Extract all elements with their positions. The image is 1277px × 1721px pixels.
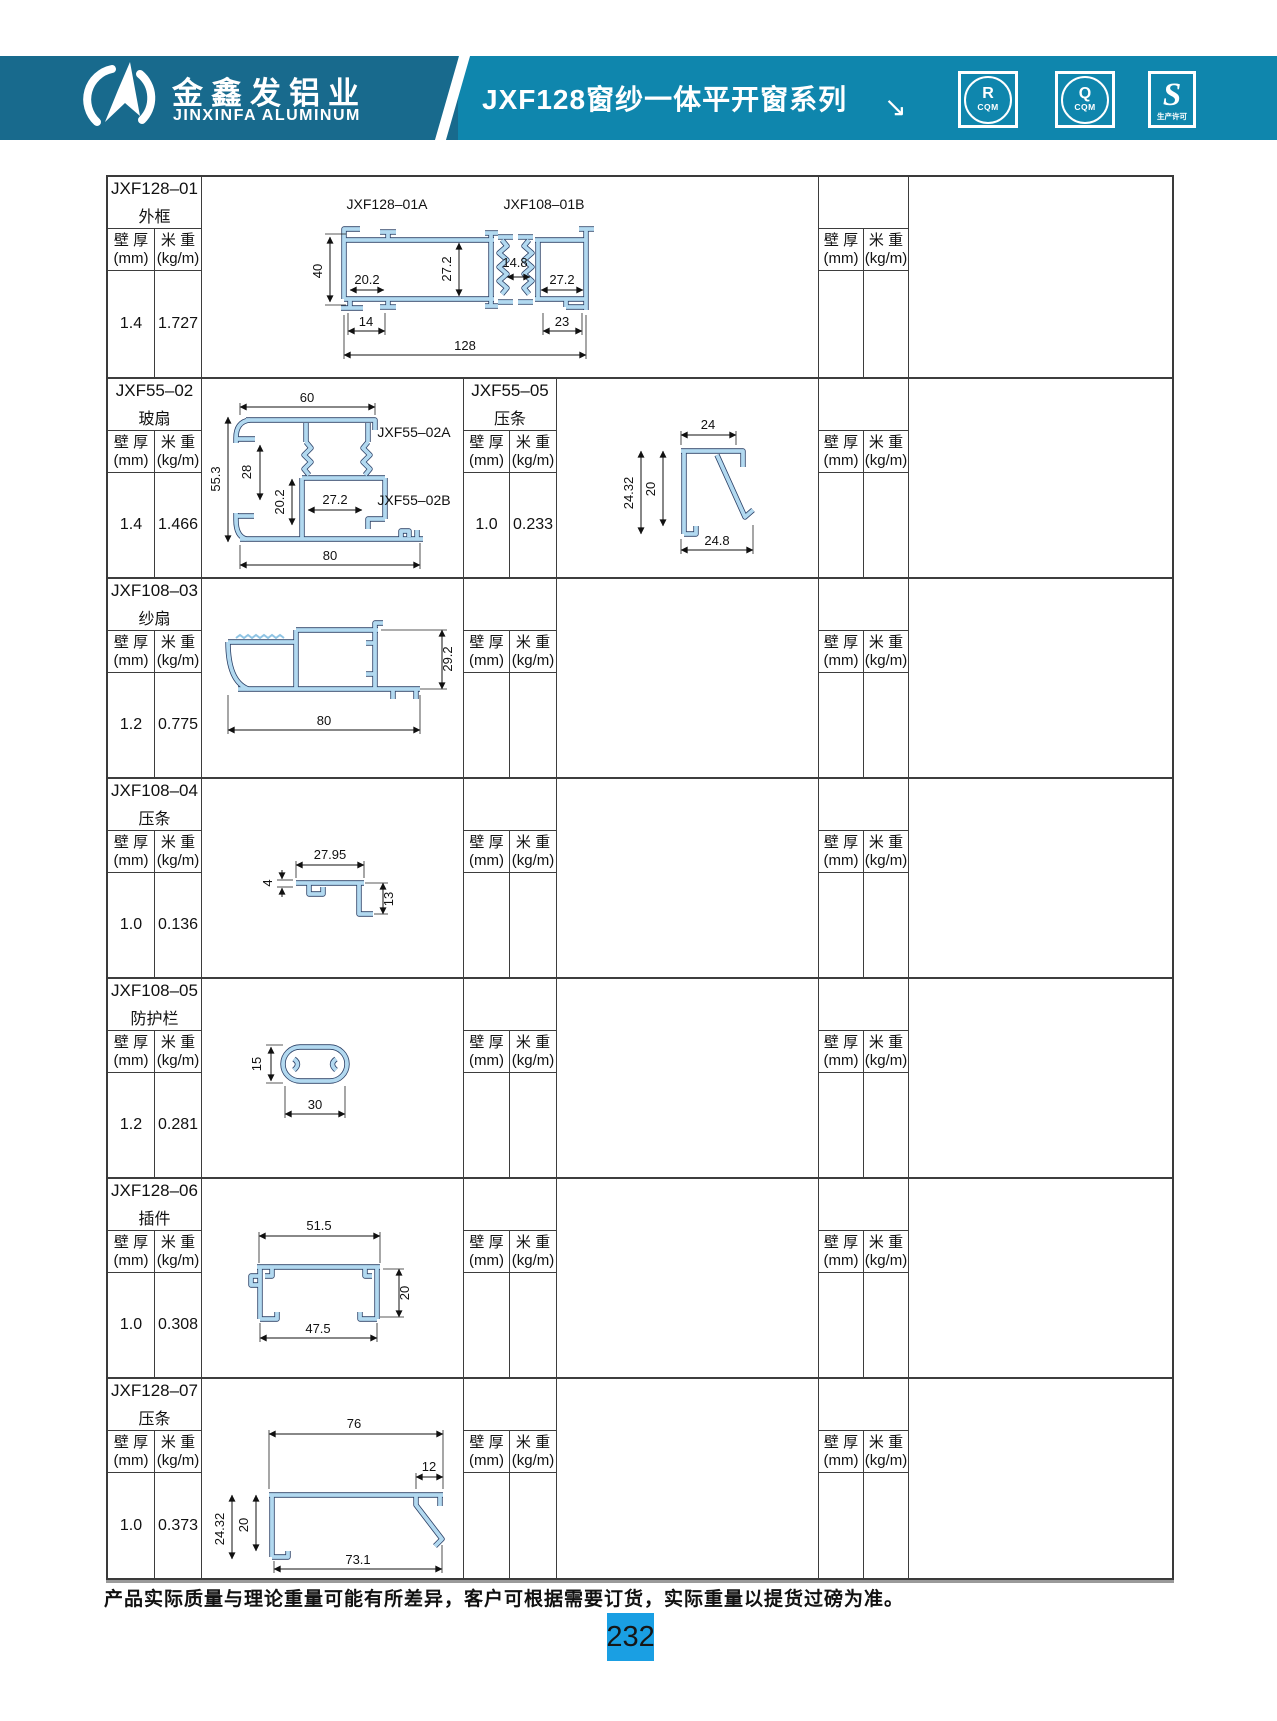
value: 1.0 xyxy=(120,916,142,934)
profile-name: 玻扇 xyxy=(138,405,170,429)
hdr-line2: (kg/m) xyxy=(865,1252,908,1270)
hdr-line1: 壁 厚 xyxy=(469,434,503,452)
profile-drawing-cell: 27.95 4 13 xyxy=(202,779,464,977)
company-logo-icon xyxy=(76,60,160,138)
meter-weight-header: 米 重(kg/m) xyxy=(155,1431,202,1473)
profile-code: JXF128–06 xyxy=(111,1181,198,1201)
value: 1.0 xyxy=(120,1316,142,1334)
profile-drawing-jxf108-05: 15 30 xyxy=(202,979,464,1177)
empty-value-cell xyxy=(864,473,909,577)
hdr-line2: (mm) xyxy=(469,1252,504,1270)
hdr-line1: 壁 厚 xyxy=(824,1234,858,1252)
empty-drawing-cell xyxy=(557,979,819,1177)
hdr-line2: (kg/m) xyxy=(157,852,200,870)
empty-value-cell xyxy=(819,673,864,777)
badge-sub: CQM xyxy=(977,103,998,112)
profile-code-cell: JXF128–07 压条 xyxy=(108,1379,202,1431)
wall-thickness-header: 壁 厚(mm) xyxy=(108,1431,155,1473)
wall-thickness-header: 壁 厚(mm) xyxy=(108,229,155,271)
empty-value-cell xyxy=(464,1073,510,1177)
empty-drawing-cell xyxy=(557,579,819,777)
meter-weight-header: 米 重(kg/m) xyxy=(864,631,909,673)
wall-thickness-header: 壁 厚(mm) xyxy=(108,831,155,873)
sub-profile-label-a: JXF128–01A xyxy=(347,196,429,212)
profile-drawing-cell: 40 20.2 27.2 14.8 27.2 14 xyxy=(202,177,819,377)
hdr-line2: (kg/m) xyxy=(157,652,200,670)
hdr-line2: (kg/m) xyxy=(512,1252,555,1270)
meter-weight-value: 0.233 xyxy=(510,473,557,577)
meter-weight-header: 米 重(kg/m) xyxy=(510,831,557,873)
badge-letter: R xyxy=(982,86,994,103)
empty-value-cell xyxy=(464,1273,510,1377)
wall-thickness-header: 壁 厚(mm) xyxy=(819,431,864,473)
hdr-line2: (mm) xyxy=(114,452,149,470)
qs-mark-icon: S 生产许可 xyxy=(1157,78,1187,121)
profile-drawing-jxf55-05: 24 24.32 20 24.8 xyxy=(557,379,819,577)
profile-code: JXF55–05 xyxy=(471,381,549,401)
hdr-line2: (kg/m) xyxy=(512,852,555,870)
wall-thickness-value: 1.0 xyxy=(108,1473,155,1578)
hdr-line1: 壁 厚 xyxy=(824,634,858,652)
spare-top-cell xyxy=(464,979,557,1031)
spare-top-cell xyxy=(464,579,557,631)
hdr-line2: (mm) xyxy=(114,652,149,670)
hdr-line2: (kg/m) xyxy=(865,1052,908,1070)
value: 1.2 xyxy=(120,1116,142,1134)
dim-73-1: 73.1 xyxy=(345,1552,370,1567)
hdr-line2: (mm) xyxy=(824,1252,859,1270)
profile-name: 压条 xyxy=(138,805,170,829)
hdr-line2: (mm) xyxy=(469,452,504,470)
empty-value-cell xyxy=(510,1273,557,1377)
dim-15: 15 xyxy=(249,1057,264,1071)
hdr-line2: (mm) xyxy=(114,1452,149,1470)
spare-top-cell xyxy=(819,177,909,229)
profile-drawing-cell: 51.5 20 47.5 xyxy=(202,1179,464,1377)
company-name-en: JINXINFA ALUMINUM xyxy=(173,107,361,125)
profile-drawing-cell: 15 30 xyxy=(202,979,464,1177)
hdr-line2: (mm) xyxy=(824,250,859,268)
hdr-line1: 壁 厚 xyxy=(114,1034,148,1052)
meter-weight-header: 米 重(kg/m) xyxy=(510,1031,557,1073)
meter-weight-header: 米 重(kg/m) xyxy=(155,631,202,673)
spare-top-cell xyxy=(819,1379,909,1431)
empty-value-cell xyxy=(819,1273,864,1377)
profile-table: JXF128–01 外框 壁 厚(mm) 米 重(kg/m) 1.4 1.727 xyxy=(106,175,1174,1580)
table-row: JXF128–06 插件 壁 厚(mm) 米 重(kg/m) 1.0 0.308 xyxy=(108,1179,1172,1379)
dim-24-32: 24.32 xyxy=(212,1513,227,1546)
empty-drawing-cell xyxy=(909,379,1172,577)
empty-value-cell xyxy=(819,1073,864,1177)
hdr-line1: 壁 厚 xyxy=(469,1234,503,1252)
dim-20: 20 xyxy=(236,1518,251,1532)
profile-code: JXF108–03 xyxy=(111,581,198,601)
dim-20: 20 xyxy=(397,1286,412,1300)
dim-20-2: 20.2 xyxy=(354,272,379,287)
spare-top-cell xyxy=(464,779,557,831)
sub-profile-label-a: JXF55–02A xyxy=(377,424,451,440)
dimensions: 40 20.2 27.2 14.8 27.2 14 xyxy=(310,196,586,359)
profile-code: JXF108–05 xyxy=(111,981,198,1001)
empty-value-cell xyxy=(864,673,909,777)
hdr-line2: (kg/m) xyxy=(512,652,555,670)
cert-circle-icon: R CQM xyxy=(964,76,1012,124)
hdr-line1: 壁 厚 xyxy=(114,1234,148,1252)
wall-thickness-header: 壁 厚(mm) xyxy=(464,1431,510,1473)
meter-weight-value: 0.373 xyxy=(155,1473,202,1578)
empty-drawing-cell xyxy=(557,1379,819,1578)
dim-55-3: 55.3 xyxy=(208,466,223,491)
profile-drawing-jxf55-02: 60 55.3 28 20.2 27.2 80 JXF55–02A JXF5 xyxy=(202,379,464,577)
dim-76: 76 xyxy=(347,1416,361,1431)
wall-thickness-value: 1.4 xyxy=(108,473,155,577)
spare-top-cell xyxy=(819,779,909,831)
cert-badge-r-cqm: R CQM xyxy=(958,71,1018,128)
hdr-line2: (mm) xyxy=(114,250,149,268)
hdr-line1: 米 重 xyxy=(516,1434,550,1452)
hdr-line1: 壁 厚 xyxy=(824,1034,858,1052)
empty-value-cell xyxy=(510,673,557,777)
meter-weight-header: 米 重(kg/m) xyxy=(864,1031,909,1073)
dim-27-2b: 27.2 xyxy=(549,272,574,287)
hdr-line1: 壁 厚 xyxy=(824,232,858,250)
hdr-line2: (mm) xyxy=(469,1052,504,1070)
cert-badge-qs: S 生产许可 xyxy=(1148,71,1196,128)
value: 1.727 xyxy=(158,315,198,333)
value: 0.136 xyxy=(158,916,198,934)
meter-weight-value: 0.775 xyxy=(155,673,202,777)
empty-value-cell xyxy=(510,1073,557,1177)
profile-code: JXF108–04 xyxy=(111,781,198,801)
hdr-line1: 米 重 xyxy=(161,232,195,250)
meter-weight-value: 0.308 xyxy=(155,1273,202,1377)
empty-value-cell xyxy=(819,473,864,577)
value: 1.4 xyxy=(120,315,142,333)
value: 1.0 xyxy=(120,1517,142,1535)
empty-value-cell xyxy=(864,1473,909,1578)
dim-27-2: 27.2 xyxy=(439,256,454,281)
spare-top-cell xyxy=(464,1379,557,1431)
hdr-line1: 壁 厚 xyxy=(824,434,858,452)
profile-name: 外框 xyxy=(138,203,170,227)
profile-drawing-cell: 60 55.3 28 20.2 27.2 80 JXF55–02A JXF5 xyxy=(202,379,464,577)
spare-top-cell xyxy=(819,579,909,631)
wall-thickness-header: 壁 厚(mm) xyxy=(819,1031,864,1073)
wall-thickness-value: 1.2 xyxy=(108,673,155,777)
hdr-line2: (kg/m) xyxy=(865,1452,908,1470)
hdr-line2: (mm) xyxy=(469,652,504,670)
dim-24: 24 xyxy=(701,417,715,432)
hdr-line1: 壁 厚 xyxy=(469,1034,503,1052)
empty-drawing-cell xyxy=(909,1379,1172,1578)
table-row: JXF128–07 压条 壁 厚(mm) 米 重(kg/m) 1.0 0.373 xyxy=(108,1379,1172,1578)
meter-weight-header: 米 重(kg/m) xyxy=(864,229,909,271)
series-title: JXF128窗纱一体平开窗系列 xyxy=(482,56,847,140)
profile-drawing-jxf128-01: 40 20.2 27.2 14.8 27.2 14 xyxy=(202,177,819,377)
profile-name: 防护栏 xyxy=(130,1005,178,1029)
profile-name: 插件 xyxy=(138,1205,170,1229)
hdr-line1: 壁 厚 xyxy=(114,232,148,250)
value: 1.466 xyxy=(158,516,198,534)
hdr-line2: (mm) xyxy=(824,1452,859,1470)
wall-thickness-value: 1.0 xyxy=(108,1273,155,1377)
profile-code-cell: JXF55–05 压条 xyxy=(464,379,557,431)
sub-profile-label-b: JXF108–01B xyxy=(504,196,585,212)
empty-value-cell xyxy=(864,1073,909,1177)
hdr-line2: (kg/m) xyxy=(157,1252,200,1270)
spare-top-cell xyxy=(464,1179,557,1231)
hdr-line1: 米 重 xyxy=(161,834,195,852)
meter-weight-value: 1.466 xyxy=(155,473,202,577)
hdr-line1: 壁 厚 xyxy=(469,634,503,652)
hdr-line2: (mm) xyxy=(824,652,859,670)
hdr-line2: (kg/m) xyxy=(512,1452,555,1470)
wall-thickness-value: 1.4 xyxy=(108,271,155,377)
hdr-line1: 壁 厚 xyxy=(469,1434,503,1452)
catalog-page: 金鑫发铝业 JINXINFA ALUMINUM JXF128窗纱一体平开窗系列 … xyxy=(0,0,1277,1721)
empty-value-cell xyxy=(864,1273,909,1377)
hdr-line2: (mm) xyxy=(824,452,859,470)
dim-20-2: 20.2 xyxy=(272,489,287,514)
empty-value-cell xyxy=(510,873,557,977)
profile-drawing-jxf128-06: 51.5 20 47.5 xyxy=(202,1179,464,1377)
spare-top-cell xyxy=(819,1179,909,1231)
wall-thickness-header: 壁 厚(mm) xyxy=(819,831,864,873)
wall-thickness-header: 壁 厚(mm) xyxy=(819,229,864,271)
hdr-line2: (kg/m) xyxy=(157,1452,200,1470)
wall-thickness-header: 壁 厚(mm) xyxy=(464,1231,510,1273)
hdr-line2: (mm) xyxy=(824,1052,859,1070)
profile-drawing-jxf108-03: 29.2 80 xyxy=(202,579,464,777)
table-row: JXF108–03 纱扇 壁 厚(mm) 米 重(kg/m) 1.2 0.775 xyxy=(108,579,1172,779)
badge-letter: S xyxy=(1163,78,1181,113)
dim-24-8: 24.8 xyxy=(704,533,729,548)
dim-40: 40 xyxy=(310,264,325,278)
badge-sub: 生产许可 xyxy=(1157,113,1187,121)
dim-29-2: 29.2 xyxy=(440,646,455,671)
dim-80: 80 xyxy=(317,713,331,728)
meter-weight-header: 米 重(kg/m) xyxy=(155,229,202,271)
profile-name: 压条 xyxy=(138,1405,170,1429)
meter-weight-header: 米 重(kg/m) xyxy=(864,1231,909,1273)
dim-30: 30 xyxy=(308,1097,322,1112)
table-row: JXF108–04 压条 壁 厚(mm) 米 重(kg/m) 1.0 0.136 xyxy=(108,779,1172,979)
profile-drawing-cell: 29.2 80 xyxy=(202,579,464,777)
hdr-line1: 壁 厚 xyxy=(114,634,148,652)
profile-code: JXF55–02 xyxy=(116,381,194,401)
table-row: JXF128–01 外框 壁 厚(mm) 米 重(kg/m) 1.4 1.727 xyxy=(108,177,1172,379)
wall-thickness-value: 1.2 xyxy=(108,1073,155,1177)
empty-drawing-cell xyxy=(909,579,1172,777)
profile-code-cell: JXF55–02 玻扇 xyxy=(108,379,202,431)
profile-drawing-jxf108-04: 27.95 4 13 xyxy=(202,779,464,977)
arrow-down-right-icon: ↘ xyxy=(884,92,907,123)
hdr-line2: (kg/m) xyxy=(157,1052,200,1070)
empty-value-cell xyxy=(864,873,909,977)
wall-thickness-header: 壁 厚(mm) xyxy=(108,431,155,473)
hdr-line2: (mm) xyxy=(114,1052,149,1070)
dim-24-32: 24.32 xyxy=(621,477,636,510)
hdr-line1: 米 重 xyxy=(869,834,903,852)
profile-drawing-cell: 76 12 24.32 20 73.1 xyxy=(202,1379,464,1578)
empty-value-cell xyxy=(864,271,909,377)
meter-weight-header: 米 重(kg/m) xyxy=(155,1031,202,1073)
dimensions: 51.5 20 47.5 xyxy=(259,1218,412,1342)
empty-value-cell xyxy=(819,873,864,977)
wall-thickness-value: 1.0 xyxy=(464,473,510,577)
profile-drawing-cell: 24 24.32 20 24.8 xyxy=(557,379,819,577)
profile-name: 压条 xyxy=(494,405,526,429)
hdr-line2: (kg/m) xyxy=(157,250,200,268)
dim-28: 28 xyxy=(239,465,254,479)
empty-drawing-cell xyxy=(909,779,1172,977)
hdr-line1: 米 重 xyxy=(516,634,550,652)
meter-weight-header: 米 重(kg/m) xyxy=(864,1431,909,1473)
meter-weight-value: 1.727 xyxy=(155,271,202,377)
badge-letter: Q xyxy=(1079,86,1091,103)
profile-code-cell: JXF128–01 外框 xyxy=(108,177,202,229)
dim-14-8: 14.8 xyxy=(502,255,527,270)
hdr-line1: 壁 厚 xyxy=(114,1434,148,1452)
spare-top-cell xyxy=(819,379,909,431)
dim-13: 13 xyxy=(381,892,396,906)
empty-drawing-cell xyxy=(909,979,1172,1177)
wall-thickness-header: 壁 厚(mm) xyxy=(464,431,510,473)
dim-4: 4 xyxy=(260,879,275,886)
hdr-line1: 壁 厚 xyxy=(824,1434,858,1452)
hdr-line2: (kg/m) xyxy=(865,452,908,470)
value: 0.233 xyxy=(513,516,553,534)
badge-sub: CQM xyxy=(1074,103,1095,112)
hdr-line1: 米 重 xyxy=(161,1434,195,1452)
hdr-line2: (kg/m) xyxy=(512,452,555,470)
value: 1.4 xyxy=(120,516,142,534)
hdr-line2: (mm) xyxy=(114,852,149,870)
wall-thickness-header: 壁 厚(mm) xyxy=(464,831,510,873)
meter-weight-header: 米 重(kg/m) xyxy=(510,631,557,673)
dim-27-2: 27.2 xyxy=(322,492,347,507)
wall-thickness-header: 壁 厚(mm) xyxy=(819,1231,864,1273)
empty-drawing-cell xyxy=(557,779,819,977)
hdr-line1: 米 重 xyxy=(869,434,903,452)
dim-12: 12 xyxy=(422,1459,436,1474)
cert-circle-icon: Q CQM xyxy=(1061,76,1109,124)
wall-thickness-header: 壁 厚(mm) xyxy=(464,1031,510,1073)
sub-profile-label-b: JXF55–02B xyxy=(377,492,450,508)
value: 0.281 xyxy=(158,1116,198,1134)
hdr-line2: (kg/m) xyxy=(157,452,200,470)
empty-value-cell xyxy=(464,1473,510,1578)
dim-51-5: 51.5 xyxy=(306,1218,331,1233)
profile-code-cell: JXF128–06 插件 xyxy=(108,1179,202,1231)
profile-drawing-jxf128-07: 76 12 24.32 20 73.1 xyxy=(202,1379,464,1578)
hdr-line1: 米 重 xyxy=(161,634,195,652)
profile-code: JXF128–01 xyxy=(111,179,198,199)
hdr-line2: (kg/m) xyxy=(865,852,908,870)
dim-47-5: 47.5 xyxy=(305,1321,330,1336)
spare-top-cell xyxy=(819,979,909,1031)
wall-thickness-header: 壁 厚(mm) xyxy=(819,1431,864,1473)
meter-weight-header: 米 重(kg/m) xyxy=(510,1431,557,1473)
empty-drawing-cell xyxy=(909,1179,1172,1377)
hdr-line1: 米 重 xyxy=(869,634,903,652)
empty-value-cell xyxy=(464,873,510,977)
dim-80: 80 xyxy=(323,548,337,563)
value: 0.308 xyxy=(158,1316,198,1334)
meter-weight-header: 米 重(kg/m) xyxy=(510,431,557,473)
profile-name: 纱扇 xyxy=(138,605,170,629)
hdr-line2: (mm) xyxy=(824,852,859,870)
hdr-line1: 米 重 xyxy=(161,1034,195,1052)
table-row: JXF55–02 玻扇 壁 厚(mm) 米 重(kg/m) 1.4 1.466 xyxy=(108,379,1172,579)
cert-badge-q-cqm: Q CQM xyxy=(1055,71,1115,128)
meter-weight-header: 米 重(kg/m) xyxy=(155,1231,202,1273)
hdr-line1: 壁 厚 xyxy=(114,834,148,852)
hdr-line1: 米 重 xyxy=(516,834,550,852)
page-number-badge: 232 xyxy=(607,1613,654,1661)
empty-drawing-cell xyxy=(909,177,1172,377)
meter-weight-value: 0.136 xyxy=(155,873,202,977)
value: 0.775 xyxy=(158,716,198,734)
dim-23: 23 xyxy=(555,314,569,329)
empty-drawing-cell xyxy=(557,1179,819,1377)
dim-27-95: 27.95 xyxy=(314,847,347,862)
value: 0.373 xyxy=(158,1517,198,1535)
wall-thickness-header: 壁 厚(mm) xyxy=(108,1031,155,1073)
wall-thickness-value: 1.0 xyxy=(108,873,155,977)
meter-weight-header: 米 重(kg/m) xyxy=(155,431,202,473)
hdr-line1: 米 重 xyxy=(869,1434,903,1452)
meter-weight-header: 米 重(kg/m) xyxy=(864,831,909,873)
wall-thickness-header: 壁 厚(mm) xyxy=(108,631,155,673)
value: 1.0 xyxy=(475,516,497,534)
empty-value-cell xyxy=(819,271,864,377)
profile-code-cell: JXF108–04 压条 xyxy=(108,779,202,831)
profile-code-cell: JXF108–05 防护栏 xyxy=(108,979,202,1031)
hdr-line1: 壁 厚 xyxy=(114,434,148,452)
footer-note: 产品实际质量与理论重量可能有所差异，客户可根据需要订货，实际重量以提货过磅为准。 xyxy=(104,1584,904,1611)
empty-value-cell xyxy=(464,673,510,777)
profile-code: JXF128–07 xyxy=(111,1381,198,1401)
hdr-line2: (kg/m) xyxy=(512,1052,555,1070)
value: 1.2 xyxy=(120,716,142,734)
wall-thickness-header: 壁 厚(mm) xyxy=(464,631,510,673)
hdr-line2: (mm) xyxy=(469,852,504,870)
hdr-line1: 壁 厚 xyxy=(824,834,858,852)
empty-value-cell xyxy=(819,1473,864,1578)
hdr-line1: 米 重 xyxy=(869,1234,903,1252)
wall-thickness-header: 壁 厚(mm) xyxy=(108,1231,155,1273)
hdr-line2: (kg/m) xyxy=(865,652,908,670)
hdr-line1: 米 重 xyxy=(869,232,903,250)
hdr-line1: 壁 厚 xyxy=(469,834,503,852)
dim-20: 20 xyxy=(643,482,658,496)
hdr-line2: (kg/m) xyxy=(865,250,908,268)
empty-value-cell xyxy=(510,1473,557,1578)
meter-weight-value: 0.281 xyxy=(155,1073,202,1177)
table-row: JXF108–05 防护栏 壁 厚(mm) 米 重(kg/m) 1.2 0.28… xyxy=(108,979,1172,1179)
hdr-line1: 米 重 xyxy=(869,1034,903,1052)
hdr-line1: 米 重 xyxy=(516,434,550,452)
hdr-line1: 米 重 xyxy=(516,1034,550,1052)
hdr-line1: 米 重 xyxy=(161,1234,195,1252)
meter-weight-header: 米 重(kg/m) xyxy=(510,1231,557,1273)
dim-14: 14 xyxy=(359,314,373,329)
hdr-line1: 米 重 xyxy=(516,1234,550,1252)
dim-60: 60 xyxy=(300,390,314,405)
meter-weight-header: 米 重(kg/m) xyxy=(864,431,909,473)
wall-thickness-header: 壁 厚(mm) xyxy=(819,631,864,673)
